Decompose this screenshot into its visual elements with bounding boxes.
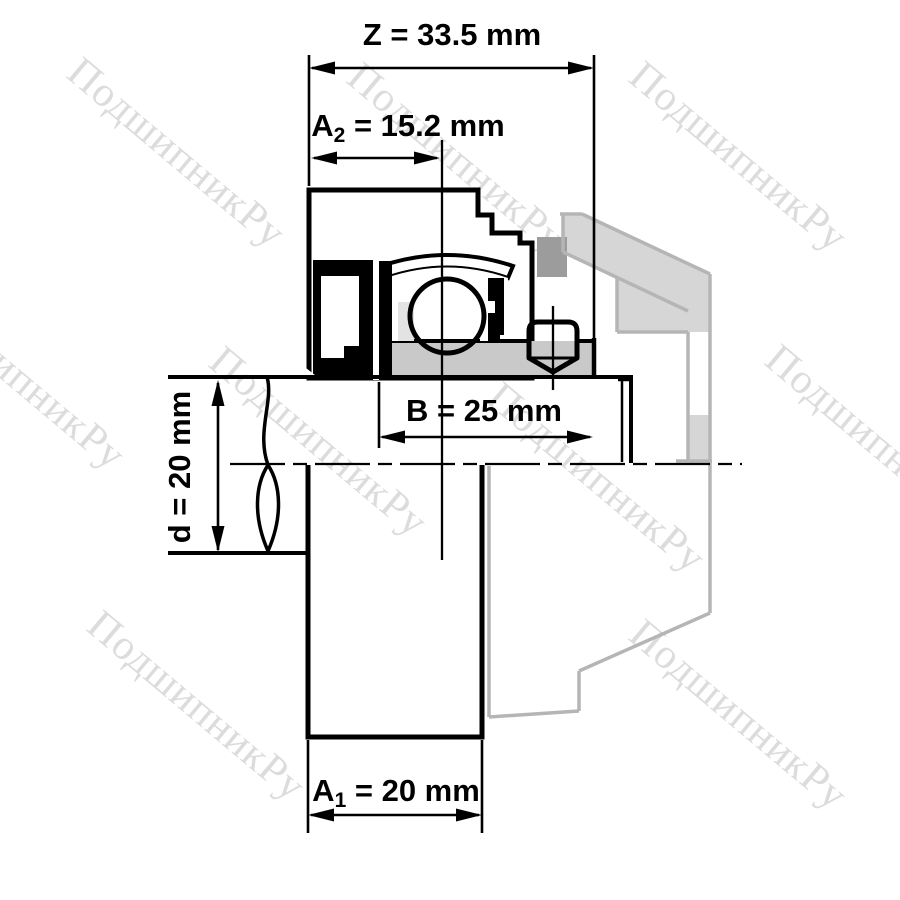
bearing-technical-drawing: ПодшипникРу ПодшипникРу ПодшипникРу Подш…	[0, 0, 900, 900]
seal-window	[321, 276, 359, 358]
label-dimension-b: B = 25 mm	[406, 393, 562, 428]
seal-ring-strip	[379, 261, 392, 380]
seal-lip-right	[488, 335, 500, 343]
seal-notch-right	[488, 301, 495, 313]
drawing-canvas: ПодшипникРу ПодшипникРу ПодшипникРу Подш…	[0, 0, 900, 900]
label-dimension-d: d = 20 mm	[162, 391, 197, 544]
seal-gap	[373, 261, 379, 380]
ghost-flange-lower-fill	[689, 415, 710, 463]
label-dimension-z: Z = 33.5 mm	[363, 17, 541, 52]
